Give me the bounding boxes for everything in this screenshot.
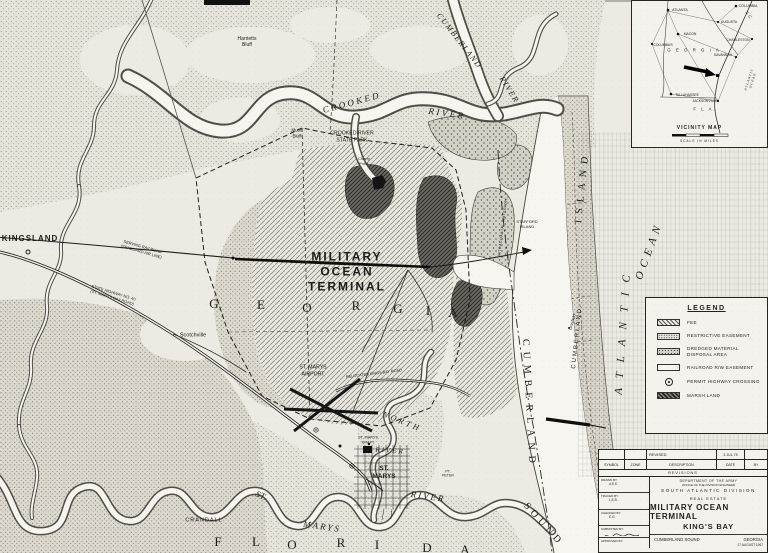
legend-item-restrictive-easement: RESTRICTIVE EASEMENT — [657, 333, 767, 340]
map-title-line1: MILITARY OCEAN TERMINAL — [650, 503, 767, 521]
map-title-line2: KING'S BAY — [683, 522, 734, 531]
title-column: DEPARTMENT OF THE ARMY OFFICE OF THE DIV… — [650, 477, 767, 548]
legend-item-marsh-land: MARSH LAND — [657, 392, 767, 399]
date-note: 17 AUGUST 1967 — [650, 542, 767, 548]
approved-by-row: APPROVED BY: — [599, 538, 649, 549]
signature-scribble — [601, 531, 641, 536]
legend-title: LEGEND — [646, 305, 767, 312]
traced-by-value: L.E.B. — [609, 498, 647, 502]
legend-item-dredged-material: DREDGED MATERIAL DISPOSAL AREA — [657, 346, 767, 358]
col-date: DATE — [717, 460, 745, 469]
col-description: DESCRIPTION — [647, 460, 717, 469]
submitted-by-row: SUBMITTED BY: — [599, 526, 649, 538]
legend-item-label: PERMIT HIGHWAY CROSSING — [687, 379, 760, 385]
legend-item-railroad-easement: RAILROAD R/W EASEMENT — [657, 364, 767, 371]
revision-entry-row: REVISED 3 JUL 75 — [599, 450, 767, 460]
revision-date-cell: 3 JUL 75 — [717, 450, 745, 459]
legend-item-label: RAILROAD R/W EASEMENT — [687, 365, 754, 371]
revisions-caption: REVISIONS — [599, 470, 767, 477]
marsh-land-swatch — [657, 392, 680, 399]
vicinity-city-dots — [651, 5, 753, 102]
revision-description-cell: REVISED — [647, 450, 717, 459]
drawn-by-row: DRAWN BY: A.E.E. — [599, 477, 649, 493]
dredged-material-swatch — [657, 348, 680, 355]
legend-item-permit-crossing: PERMIT HIGHWAY CROSSING — [657, 378, 767, 386]
revision-header-row: SYMBOL ZONE DESCRIPTION DATE BY — [599, 460, 767, 470]
division-line: SOUTH ATLANTIC DIVISION — [661, 488, 756, 493]
revision-zone-cell — [625, 450, 647, 459]
location-row: CUMBERLAND SOUND GEORGIA — [650, 534, 767, 542]
inset-scale-bar — [672, 134, 728, 137]
office-line: OFFICE OF THE DIVISION ENGINEER — [682, 483, 735, 487]
signature-column: DRAWN BY: A.E.E. TRACED BY: L.E.B. CHECK… — [599, 477, 650, 548]
legend-item-label: DREDGED MATERIAL DISPOSAL AREA — [687, 346, 739, 358]
restrictive-easement-swatch — [657, 333, 680, 340]
col-by: BY — [745, 460, 767, 469]
permit-crossing-icon — [665, 378, 673, 386]
legend-item-label: MARSH LAND — [687, 393, 720, 399]
legend-item-label: FEE — [687, 320, 697, 326]
site-arrow — [684, 67, 719, 77]
vicinity-map-inset: ATLANTACOLUMBIAAUGUSTAMACONCOLUMBUSCHARL… — [631, 0, 768, 148]
checked-by-value: E.G. — [609, 515, 647, 519]
legend: LEGEND FEE RESTRICTIVE EASEMENT DREDGED … — [645, 297, 768, 434]
revision-symbol-cell — [599, 450, 625, 459]
legend-item-fee: FEE — [657, 319, 767, 326]
signature-scribble — [601, 543, 641, 548]
vicinity-map-title: VICINITY MAP — [632, 125, 767, 131]
real-estate-caption: REAL ESTATE — [690, 496, 727, 501]
col-symbol: SYMBOL — [599, 460, 625, 469]
scanned-map-page: KINGSLANDHarrietts BluffMush BluffCROOKE… — [0, 0, 768, 553]
title-block: REVISED 3 JUL 75 SYMBOL ZONE DESCRIPTION… — [598, 449, 768, 553]
railroad-easement-swatch — [657, 364, 680, 371]
col-zone: ZONE — [625, 460, 647, 469]
traced-by-row: TRACED BY: L.E.B. — [599, 493, 649, 509]
drawn-by-value: A.E.E. — [609, 482, 647, 486]
title-block-main: DRAWN BY: A.E.E. TRACED BY: L.E.B. CHECK… — [599, 477, 767, 548]
vicinity-scale-label: SCALE IN MILES — [632, 139, 767, 143]
revision-by-cell — [745, 450, 767, 459]
scan-edge-tab — [204, 0, 250, 5]
checked-by-row: CHECKED BY: E.G. — [599, 510, 649, 526]
legend-item-label: RESTRICTIVE EASEMENT — [687, 333, 750, 339]
fee-swatch — [657, 319, 680, 326]
